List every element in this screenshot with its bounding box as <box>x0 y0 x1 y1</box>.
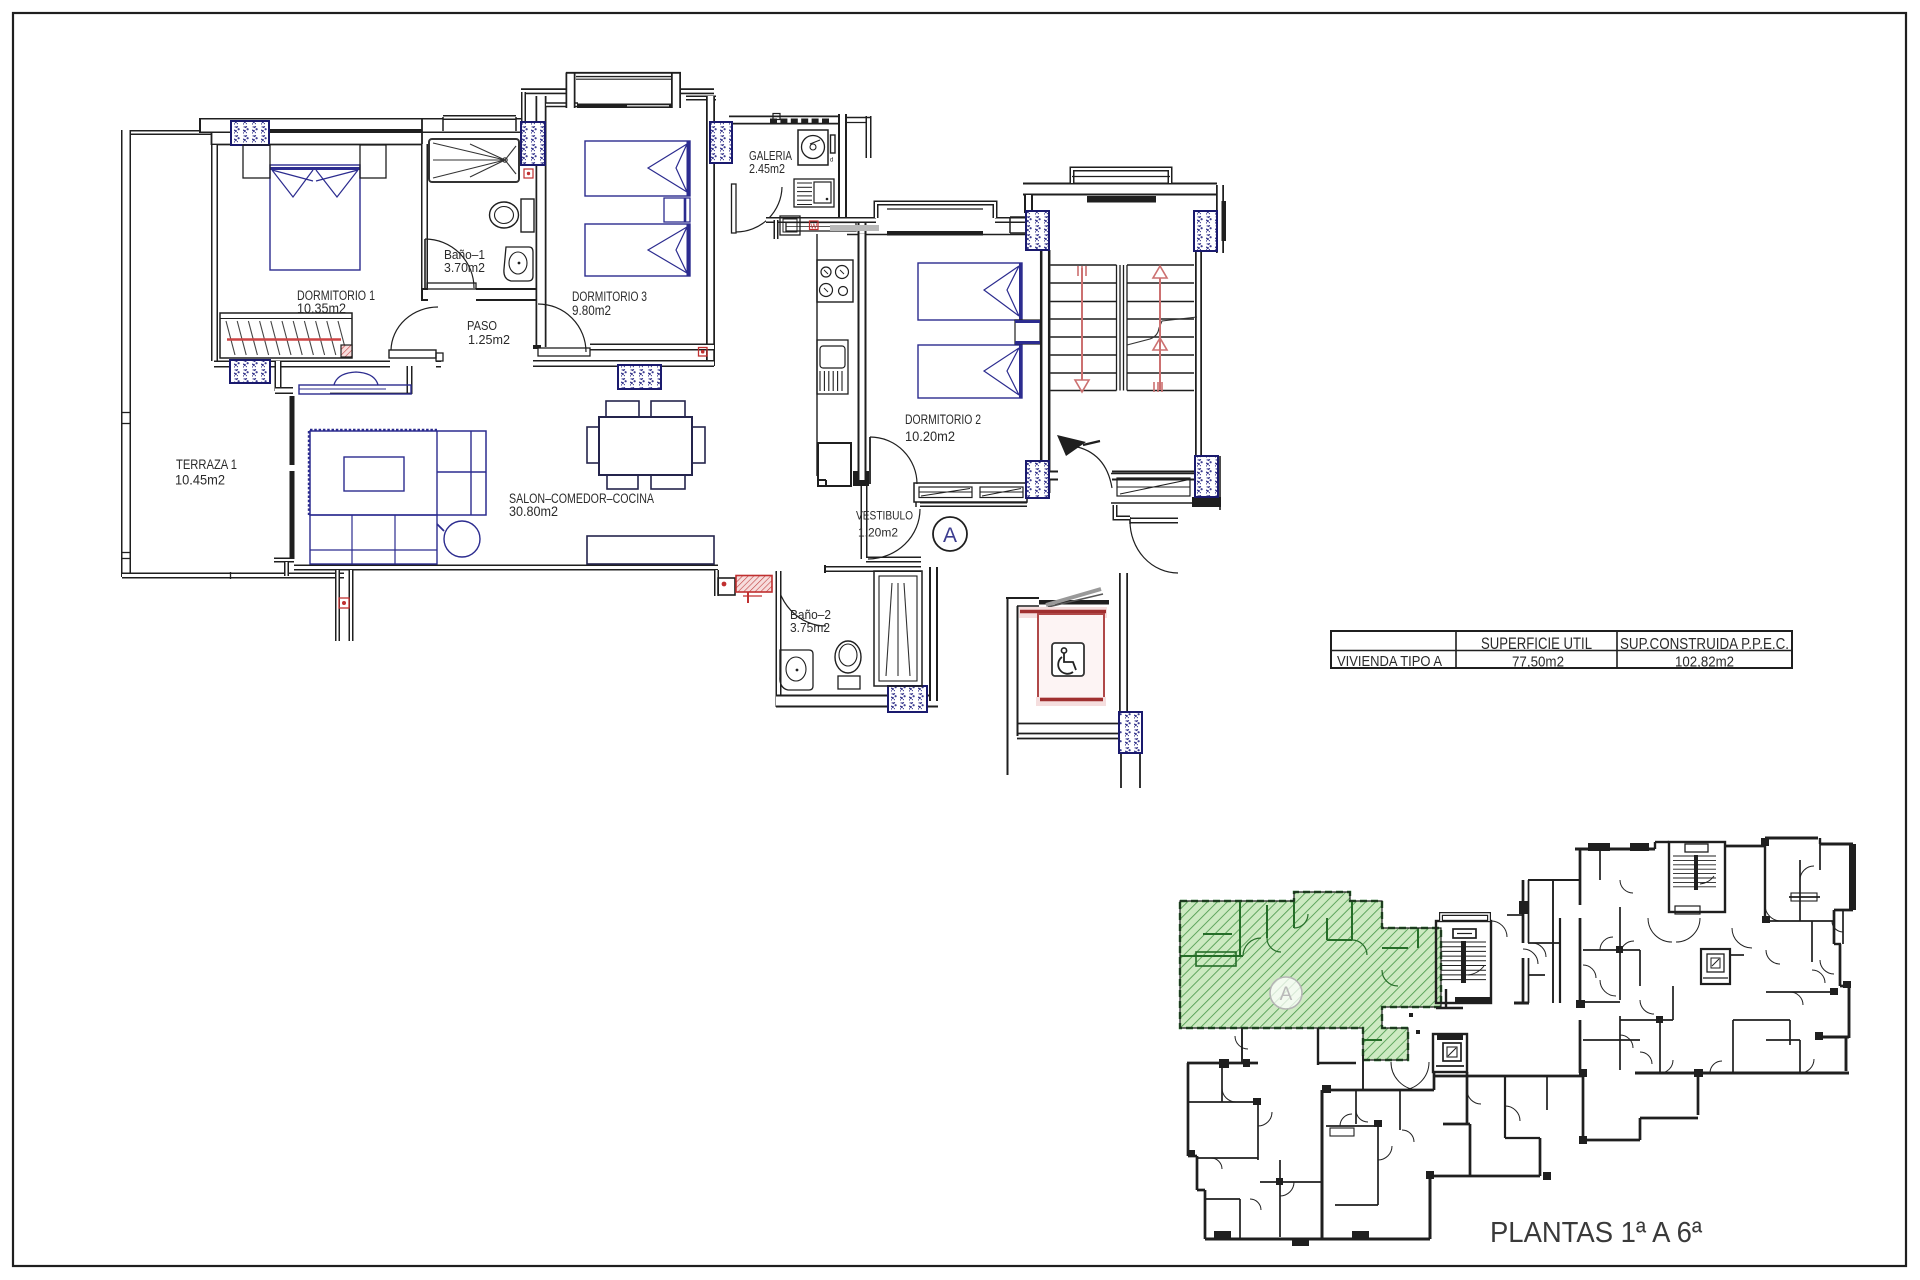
svg-text:TERRAZA 1: TERRAZA 1 <box>176 457 237 472</box>
svg-text:PASO: PASO <box>467 318 497 333</box>
svg-text:SUPERFICIE UTIL: SUPERFICIE UTIL <box>1481 635 1592 653</box>
svg-text:2.45m2: 2.45m2 <box>749 162 785 176</box>
svg-text:1.20m2: 1.20m2 <box>858 526 898 540</box>
svg-text:GALERIA: GALERIA <box>749 149 793 163</box>
svg-text:10.20m2: 10.20m2 <box>905 429 955 444</box>
svg-text:Baño–2: Baño–2 <box>790 608 831 622</box>
svg-text:A: A <box>1280 984 1293 1005</box>
svg-text:9.80m2: 9.80m2 <box>572 303 611 318</box>
svg-text:3.75m2: 3.75m2 <box>790 621 830 635</box>
svg-text:77,50m2: 77,50m2 <box>1512 654 1564 671</box>
svg-text:W: W <box>811 223 818 230</box>
svg-text:Baño–1: Baño–1 <box>444 248 485 262</box>
svg-text:VESTIBULO: VESTIBULO <box>856 509 913 523</box>
svg-text:VIVIENDA TIPO A: VIVIENDA TIPO A <box>1337 653 1442 670</box>
svg-text:d: d <box>830 158 833 164</box>
svg-text:DORMITORIO 2: DORMITORIO 2 <box>905 412 981 427</box>
svg-text:30.80m2: 30.80m2 <box>509 504 558 519</box>
svg-text:SUP.CONSTRUIDA P.P.E.C.: SUP.CONSTRUIDA P.P.E.C. <box>1620 636 1789 653</box>
svg-text:A: A <box>943 524 957 547</box>
svg-text:3.70m2: 3.70m2 <box>444 261 485 275</box>
svg-text:PLANTAS 1ª A 6ª: PLANTAS 1ª A 6ª <box>1490 1217 1702 1249</box>
svg-text:102,82m2: 102,82m2 <box>1675 654 1734 671</box>
svg-text:10.45m2: 10.45m2 <box>175 473 225 488</box>
svg-text:10.35m2: 10.35m2 <box>297 301 346 316</box>
svg-text:DORMITORIO 3: DORMITORIO 3 <box>572 289 647 304</box>
svg-text:1.25m2: 1.25m2 <box>468 332 510 347</box>
